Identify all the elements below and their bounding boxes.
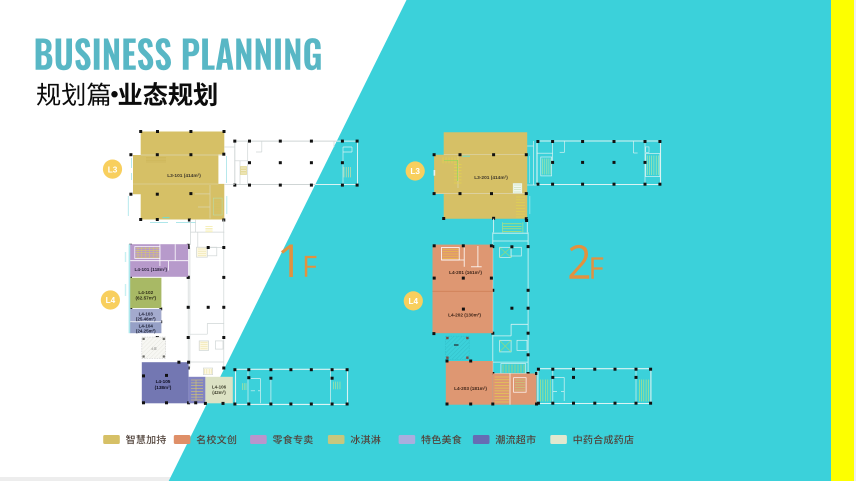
svg-text:L3: L3 <box>108 165 118 174</box>
svg-text:(138m²): (138m²) <box>155 385 172 390</box>
svg-text:(62.57m²): (62.57m²) <box>136 296 157 301</box>
svg-text:L4-105: L4-105 <box>156 379 171 384</box>
svg-text:L4-102: L4-102 <box>138 290 153 295</box>
svg-text:L4-203 (181m²): L4-203 (181m²) <box>454 386 487 391</box>
svg-text:土建: 土建 <box>151 346 157 351</box>
svg-text:L3-101 (414m²): L3-101 (414m²) <box>167 173 201 179</box>
svg-text:L3: L3 <box>410 167 420 176</box>
svg-text:(24.25m²): (24.25m²) <box>136 329 156 334</box>
svg-text:L4-101 (118m²): L4-101 (118m²) <box>135 267 168 272</box>
svg-text:(42m²): (42m²) <box>212 390 226 395</box>
svg-text:L4-106: L4-106 <box>212 385 227 390</box>
svg-text:(25.46m²): (25.46m²) <box>136 317 156 322</box>
svg-text:L4-201 (161m²): L4-201 (161m²) <box>449 270 482 275</box>
svg-text:L4: L4 <box>409 297 419 306</box>
svg-text:L4-202 (130m²): L4-202 (130m²) <box>448 313 481 318</box>
svg-text:L4: L4 <box>106 296 116 305</box>
svg-text:L3-201 (414m²): L3-201 (414m²) <box>474 175 508 181</box>
svg-text:L4-103: L4-103 <box>139 311 154 316</box>
